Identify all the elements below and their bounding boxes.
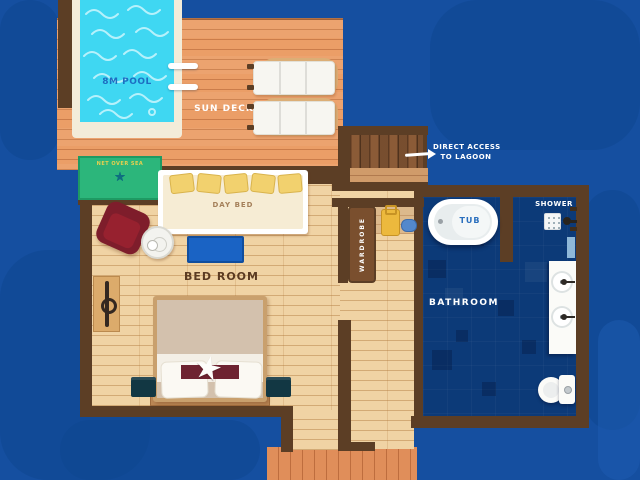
shower-drain-icon — [544, 213, 561, 230]
net-day-bed-label: NET OVER SEA — [80, 162, 160, 168]
bathtub: TUB — [428, 199, 498, 245]
pool-edge — [58, 0, 72, 108]
bedside-bench — [266, 377, 291, 397]
day-bed-pillow — [169, 173, 195, 195]
stairs — [350, 132, 426, 168]
wall — [576, 185, 589, 428]
wall — [338, 126, 428, 135]
day-bed-pillow — [277, 173, 303, 194]
wall — [423, 132, 427, 168]
bath-tile — [456, 330, 468, 342]
wall — [80, 406, 293, 417]
wardrobe-label: WARDROBE — [359, 217, 366, 272]
bath-tile — [428, 260, 446, 278]
lagoon-access-line1: DIRECT ACCESS — [433, 143, 499, 153]
day-bed-pillow — [196, 173, 222, 194]
shower-head-icon — [569, 220, 577, 223]
faucet-icon — [566, 316, 575, 318]
lagoon-access-label: DIRECT ACCESS TO LAGOON — [433, 143, 499, 162]
pool-ladder-icon — [168, 84, 198, 90]
glass — [147, 240, 158, 251]
bathroom-label: BATHROOM — [424, 299, 504, 309]
water-patch — [430, 0, 640, 150]
sun-lounger — [253, 101, 335, 135]
wall — [338, 198, 348, 283]
lounger-arm — [247, 64, 254, 69]
water-patch — [598, 320, 640, 480]
lounger-arm — [247, 85, 254, 90]
day-bed-pillow — [250, 173, 276, 195]
rug — [187, 236, 244, 263]
net-day-bed: NET OVER SEA ★ ★ ★ ★ ★ — [78, 156, 162, 200]
wall — [338, 442, 375, 451]
bedside-bench — [131, 377, 156, 397]
wall — [411, 416, 589, 428]
water-patch — [60, 420, 260, 480]
faucet-icon — [566, 281, 575, 283]
pool — [80, 0, 174, 122]
side-table — [141, 226, 174, 259]
wall — [500, 185, 513, 262]
entry-floor — [292, 410, 340, 450]
towel — [567, 237, 575, 258]
bedroom-label: BED ROOM — [184, 271, 254, 283]
lounger-arm — [247, 125, 254, 130]
bath-tile — [525, 262, 547, 282]
suitcase-handle — [385, 205, 397, 215]
day-bed-label: DAY BED — [158, 202, 308, 210]
pool-water-texture — [80, 0, 174, 122]
wardrobe-door: WARDROBE — [348, 206, 376, 283]
water-patch — [0, 0, 60, 160]
wall — [281, 406, 293, 452]
pool-ladder-icon — [168, 63, 198, 69]
tub-drain — [438, 219, 443, 224]
pool-label: 8M POOL — [82, 78, 172, 88]
bath-tile — [432, 350, 452, 370]
beach-bag — [401, 219, 417, 232]
wall — [338, 320, 351, 451]
bath-tile — [482, 382, 496, 396]
toilet-tank — [559, 375, 575, 404]
day-bed-pillow — [223, 173, 249, 194]
flush-button — [564, 386, 572, 394]
paddle-decor-icon — [93, 276, 120, 332]
floor-plan: 8M POOL SUN DECK NET OVER SEA ★ ★ ★ ★ ★ … — [0, 0, 640, 480]
lagoon-access-line2: TO LAGOON — [433, 153, 499, 163]
faucet-icon — [561, 279, 567, 285]
starfish-icon: ★ — [114, 171, 126, 184]
bed-starfish-icon: ★ — [191, 349, 226, 386]
sun-lounger — [253, 61, 335, 95]
shower-fixture — [570, 207, 577, 211]
lounger-arm — [247, 104, 254, 109]
faucet-icon — [561, 314, 567, 320]
tub-label: TUB — [450, 217, 490, 226]
shower-fixture — [570, 227, 577, 231]
bath-tile — [522, 340, 536, 354]
